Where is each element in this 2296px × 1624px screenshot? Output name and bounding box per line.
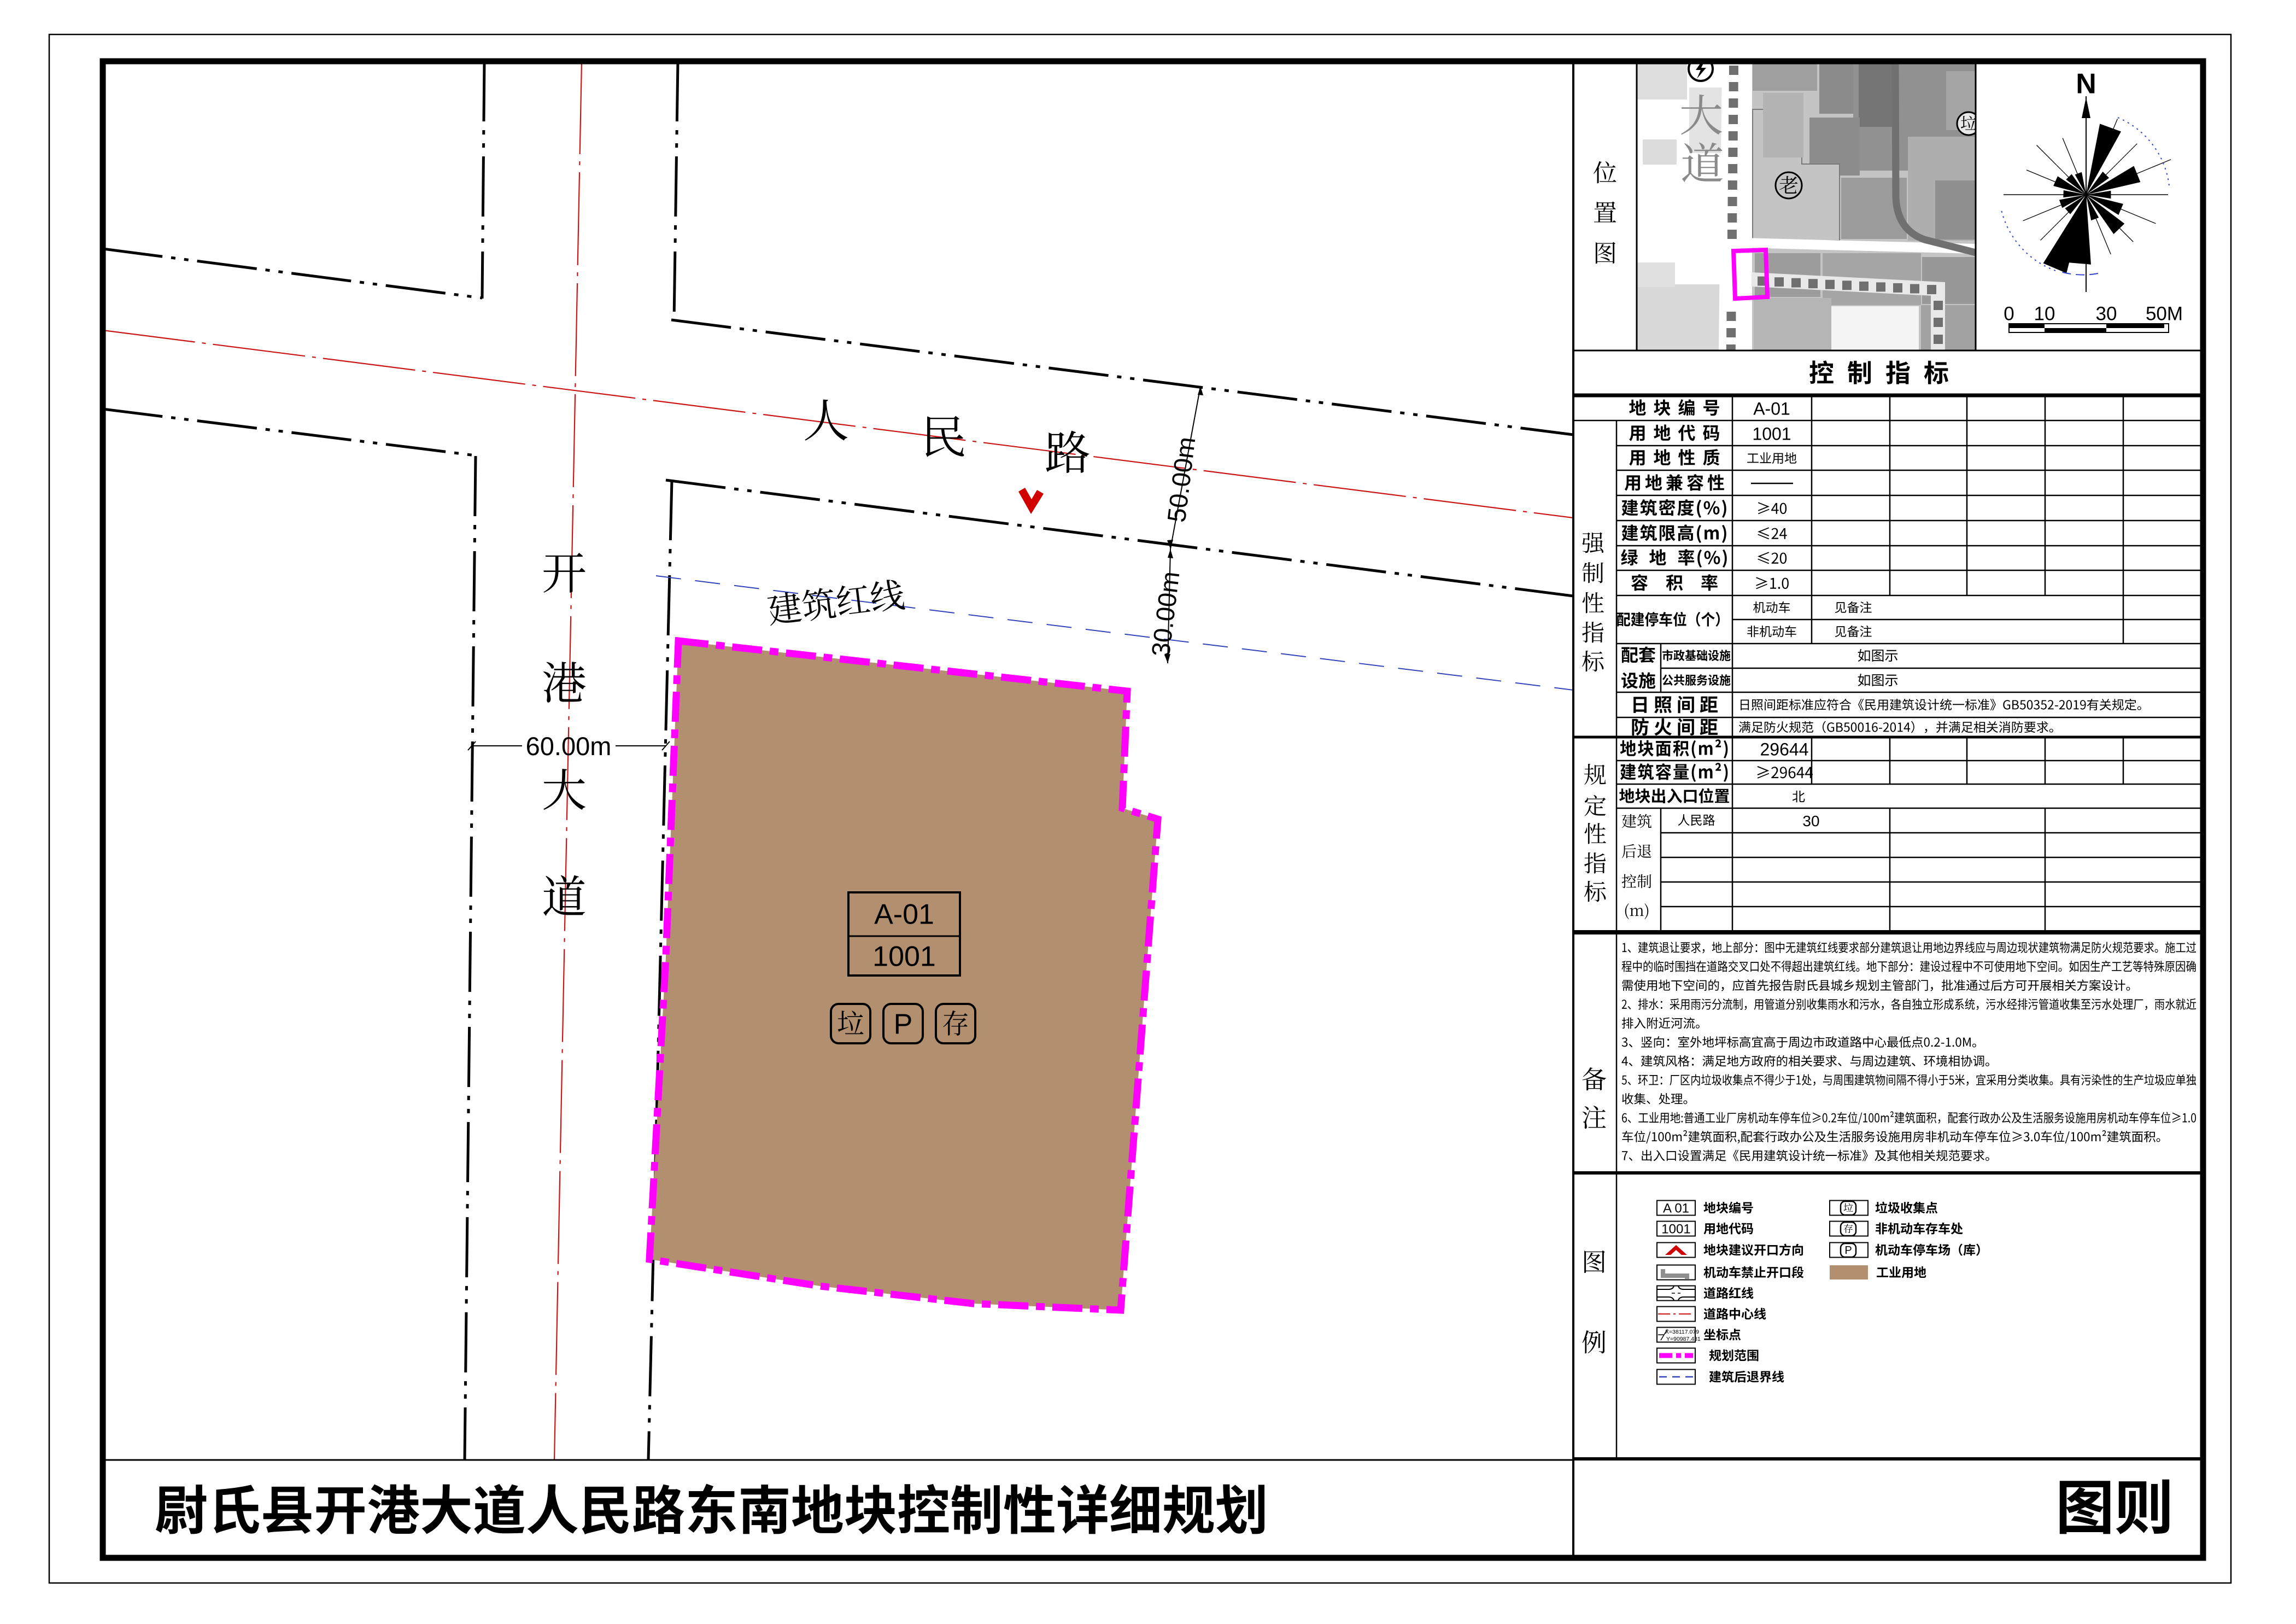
svg-text:60.00m: 60.00m [526,732,612,761]
svg-text:10: 10 [2034,303,2055,325]
svg-text:30: 30 [2096,303,2117,325]
svg-text:P: P [894,1009,913,1041]
svg-text:N: N [2076,68,2096,100]
svg-text:1001: 1001 [1661,1222,1690,1237]
svg-text:29644: 29644 [1760,740,1809,760]
svg-text:1001: 1001 [1752,424,1791,444]
svg-text:30: 30 [1802,813,1819,829]
svg-text:0: 0 [2004,303,2014,325]
svg-text:A 01: A 01 [1663,1201,1689,1216]
svg-text:P: P [1844,1245,1852,1257]
svg-text:X=38117.079: X=38117.079 [1665,1329,1699,1335]
svg-text:A-01: A-01 [1753,399,1790,419]
svg-text:1001: 1001 [872,941,936,973]
svg-text:A-01: A-01 [874,899,934,931]
svg-text:50M: 50M [2146,303,2183,325]
svg-text:Y=90987.431: Y=90987.431 [1666,1336,1701,1342]
